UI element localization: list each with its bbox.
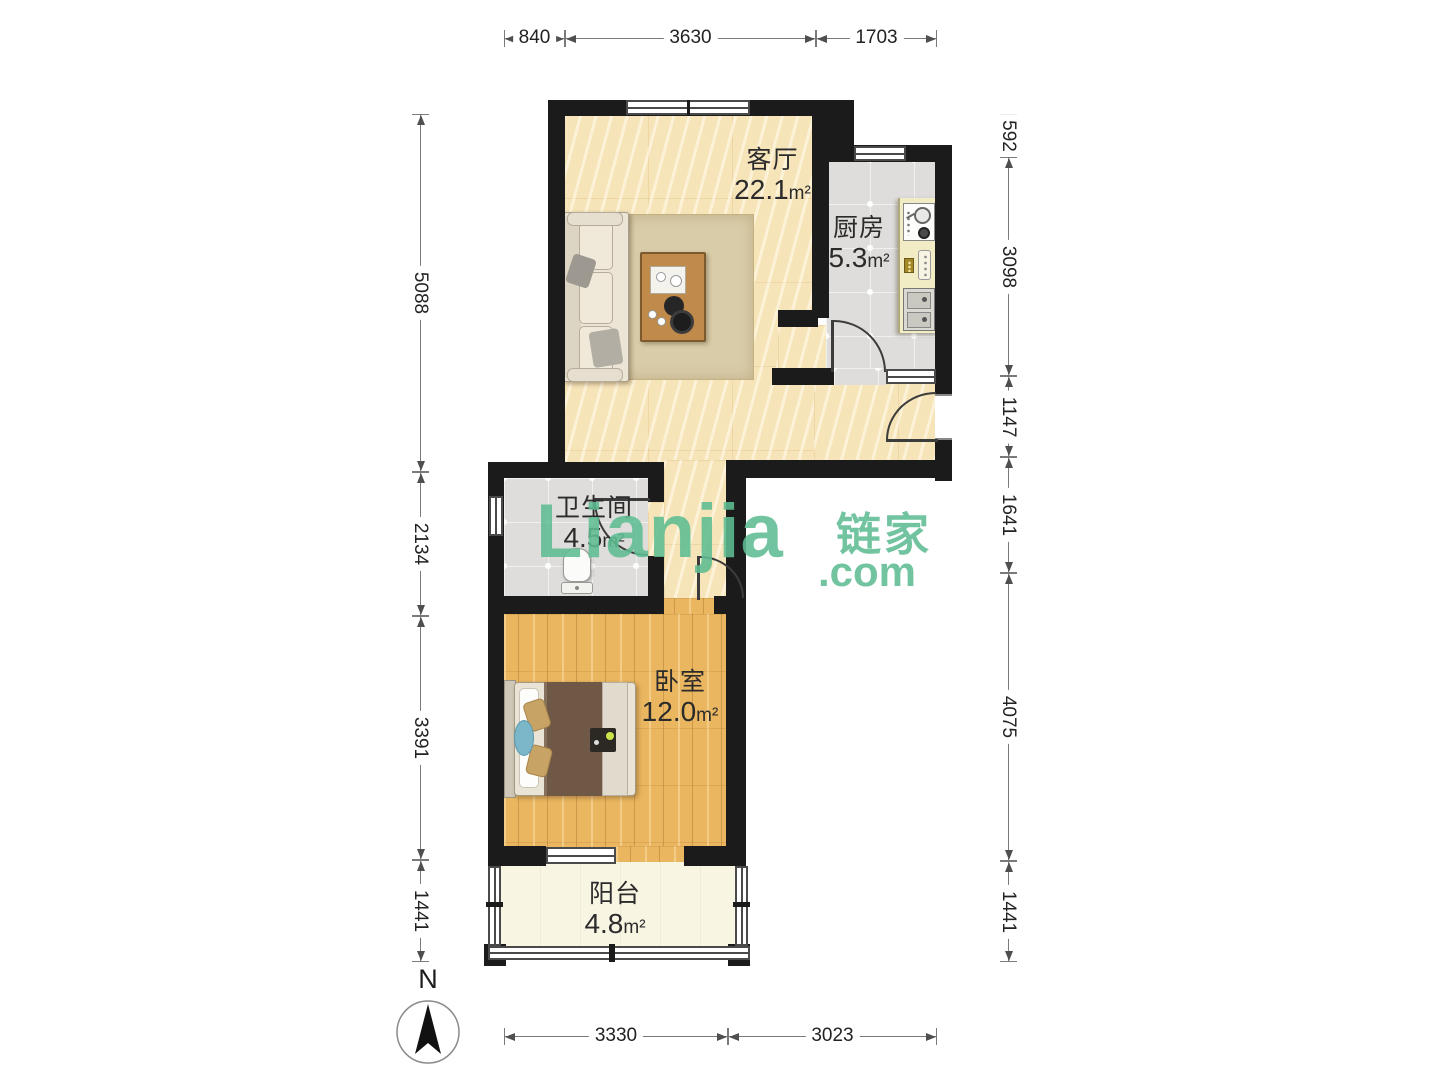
wall [935,145,952,397]
room-label-balcony: 阳台 4.8m² [540,880,690,939]
dim-right-592: 592 [998,114,1020,157]
sofa [563,212,629,382]
room-area: 22.1 [734,174,789,205]
dim-right-3098: 3098 [998,157,1020,376]
wall [488,462,664,478]
watermark-domain-text: .com [818,548,916,596]
dim-right-1641: 1641 [998,457,1020,573]
room-label-bedroom: 卧室 12.0m² [600,668,760,727]
wall [726,460,952,478]
cutting-board-icon [918,250,931,280]
toilet [558,546,596,596]
north-arrow-icon [390,992,466,1070]
kitchen-pass-window [886,369,936,384]
table-tray [650,266,686,294]
room-area: 5.3 [828,242,867,273]
bedroom-door-threshold-floor [660,598,714,614]
wall [684,846,746,866]
wall [488,596,660,614]
dim-left-1441: 1441 [410,860,432,962]
room-area: 12.0 [642,696,697,727]
kitchen-passage-floor [778,325,828,370]
north-label: N [390,966,466,992]
room-name: 客厅 [690,146,855,174]
dim-right-1147: 1147 [998,376,1020,457]
bed-tray [590,728,616,752]
teapot-icon [670,310,694,334]
compass: N [390,966,466,1070]
room-name: 厨房 [800,214,918,242]
dim-top-3630: 3630 [565,28,816,50]
dim-right-4075: 4075 [998,573,1020,861]
wall [772,368,834,385]
watermark-cn-text: 链家 [836,498,932,563]
wall [488,614,504,866]
wall [488,462,504,614]
dim-left-5088: 5088 [410,114,432,472]
wall [726,460,746,866]
wall [548,100,565,478]
room-name: 卫生间 [524,494,664,522]
wall [488,846,546,866]
floor-plan: 客厅 22.1m² 厨房 5.3m² 卫生间 4.5m² 卧室 12.0m² 阳… [0,0,1440,1080]
room-name: 阳台 [540,880,690,908]
sink-icon [903,288,935,331]
wall [778,310,818,327]
room-label-kitchen: 厨房 5.3m² [800,214,918,273]
window-mullion [486,902,503,907]
bedroom-window [546,847,616,864]
dim-bottom-3023: 3023 [728,1026,937,1048]
room-area: 4.5 [563,522,602,553]
bathroom-window [489,496,503,536]
round-cushion [514,720,534,756]
dim-left-2134: 2134 [410,472,432,616]
window-mullion [687,100,690,115]
dim-left-3391: 3391 [410,616,432,860]
entrance-door-jamb [935,394,952,440]
kitchen-window [854,146,906,161]
room-area: 4.8 [584,908,623,939]
balcony-window-front [488,946,750,960]
dim-right-1441: 1441 [998,861,1020,962]
coffee-table [640,252,706,342]
room-label-bathroom: 卫生间 4.5m² [524,494,664,553]
dim-top-840: 840 [504,28,565,50]
wall [812,100,829,318]
room-name: 卧室 [600,668,760,696]
dim-bottom-3330: 3330 [504,1026,728,1048]
window-mullion [609,944,615,962]
room-label-living: 客厅 22.1m² [690,146,855,205]
dim-top-1703: 1703 [816,28,937,50]
sofa-blanket [588,328,623,368]
window-mullion [733,902,750,907]
